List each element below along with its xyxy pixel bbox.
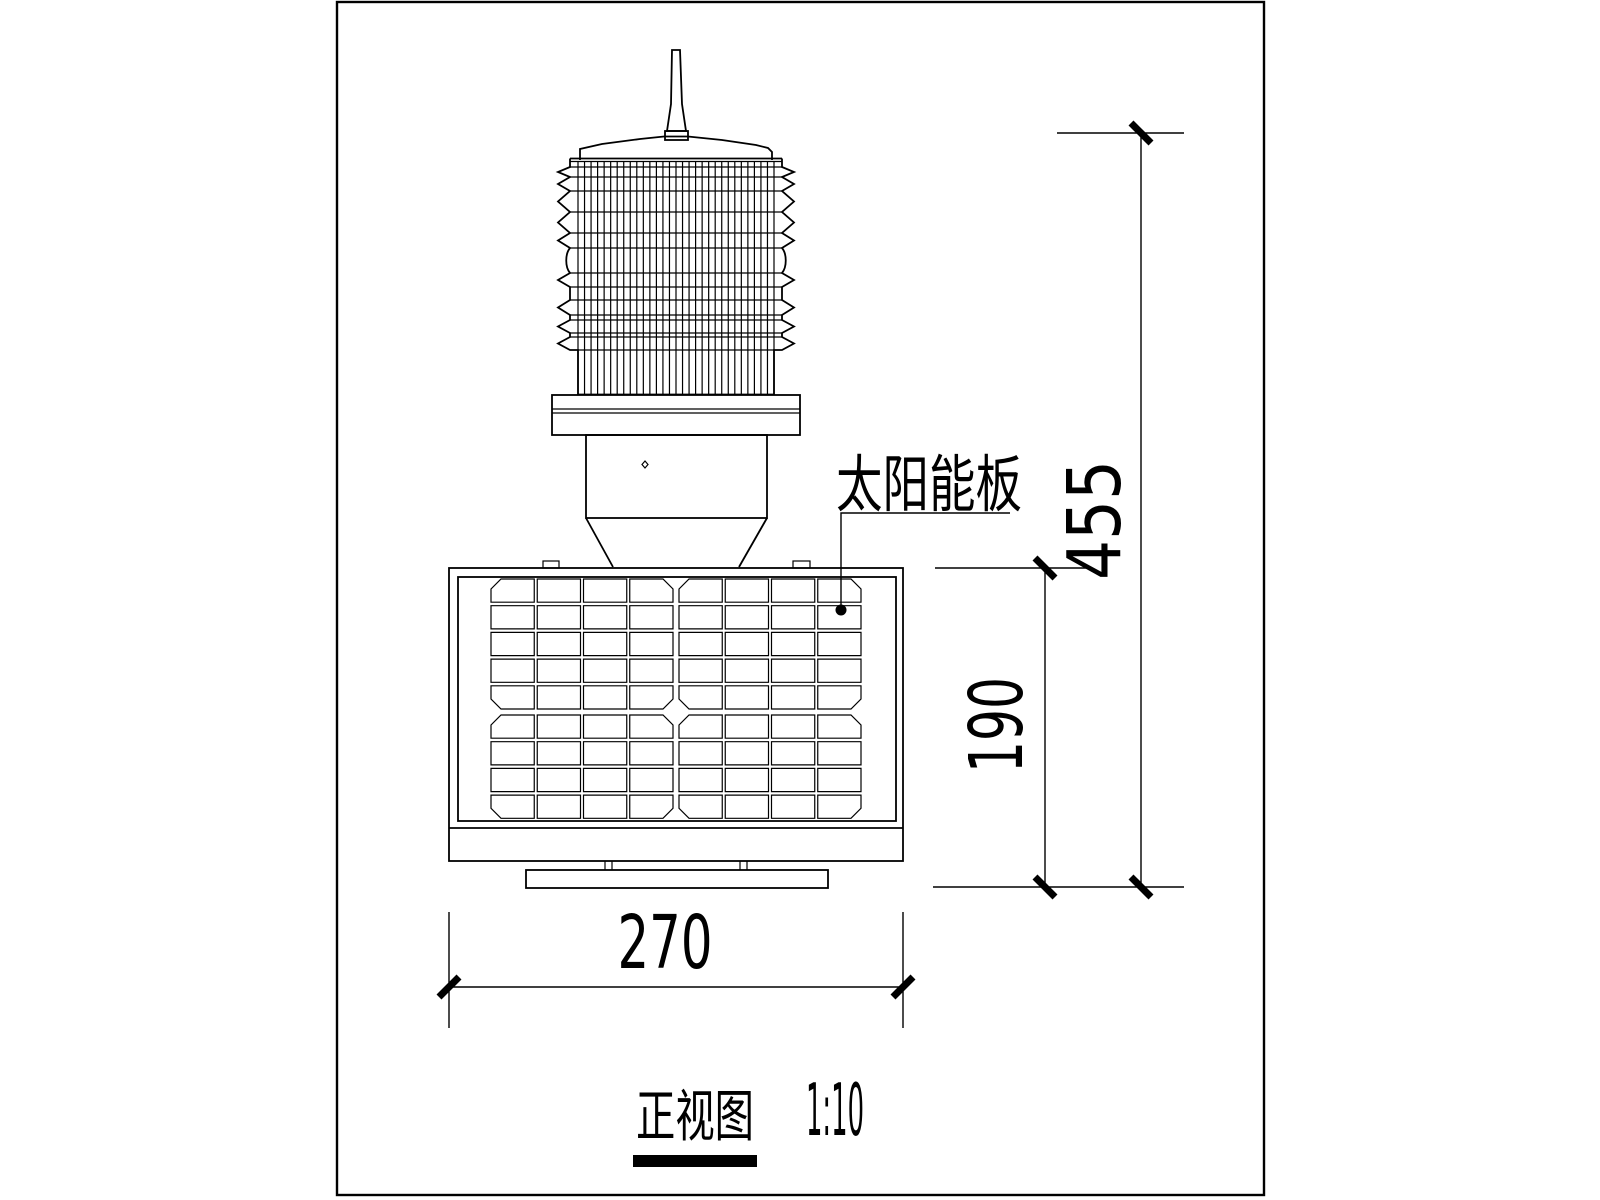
solar-cell [537,632,580,655]
solar-cell [491,659,534,682]
solar-cell [584,742,627,765]
solar-cell [818,742,861,765]
lamp-neck [586,435,767,518]
lamp-antenna-base [665,131,688,140]
solar-cell [818,579,861,602]
solar-panel-box [449,561,903,888]
solar-cell [772,579,815,602]
solar-cell [630,742,673,765]
label-leader-dot [836,605,847,616]
solar-cell [491,715,534,738]
solar-cell [772,742,815,765]
solar-cell [818,768,861,791]
dimension-panel-width: 270 [449,900,903,1028]
solar-cell [630,686,673,709]
lamp-flange [552,395,800,435]
solar-cell [537,795,580,818]
solar-cell [537,686,580,709]
solar-cell [630,659,673,682]
solar-cell [537,579,580,602]
solar-cell [772,686,815,709]
base-plate [526,870,828,888]
dimension-panel-height: 190 [935,568,1088,887]
solar-cell [679,795,722,818]
solar-cell [630,579,673,602]
solar-cell [772,715,815,738]
lamp-lens [558,159,794,396]
solar-cell [491,795,534,818]
solar-cell [491,742,534,765]
solar-cell [679,715,722,738]
neck-body [586,435,767,518]
label-leader-line [841,513,1010,610]
solar-cell [491,606,534,629]
solar-cell [584,659,627,682]
solar-cell [725,768,768,791]
solar-cell [679,606,722,629]
solar-cell [537,768,580,791]
solar-cell [630,715,673,738]
lamp-antenna [667,50,686,131]
drawing-frame-border [337,2,1264,1195]
solar-cell [584,606,627,629]
solar-cell [584,768,627,791]
solar-cell [725,579,768,602]
solar-cell [679,579,722,602]
solar-cell [772,768,815,791]
lens-left-outline [558,159,578,396]
lamp-cone [586,518,767,567]
solar-cell [630,768,673,791]
dim-190-text: 190 [954,677,1040,773]
solar-cell [818,659,861,682]
flange-plate [552,395,800,435]
solar-cell [725,742,768,765]
solar-cell [584,715,627,738]
solar-cell [679,742,722,765]
solar-cell [772,659,815,682]
solar-cell [818,686,861,709]
solar-cell [584,795,627,818]
view-title: 正视图 [636,1085,754,1150]
solar-cell [491,686,534,709]
dimension-overall-height: 455 [1052,133,1184,887]
solar-cell [537,659,580,682]
solar-cell [584,632,627,655]
solar-cell [772,606,815,629]
solar-cell [491,579,534,602]
solar-cell [818,715,861,738]
solar-cell [537,606,580,629]
cad-drawing: 太阳能板 455 190 270 正视图 1:10 [0,0,1600,1200]
solar-cell [725,795,768,818]
solar-cell [491,768,534,791]
solar-cell [679,659,722,682]
solar-cell [630,795,673,818]
solar-cell [679,686,722,709]
lens-vertical-facets [578,162,774,395]
solar-cell [818,795,861,818]
drawing-canvas: 太阳能板 455 190 270 正视图 1:10 [0,0,1600,1200]
view-scale: 1:10 [806,1068,864,1152]
title-block: 正视图 1:10 [633,1068,864,1167]
cone-left-edge [586,518,613,567]
title-underline-bar [633,1155,757,1167]
solar-cell [772,795,815,818]
solar-cell [725,606,768,629]
solar-cell [630,606,673,629]
solar-cell [679,768,722,791]
solar-panel-label: 太阳能板 [836,448,1023,616]
solar-cell [584,686,627,709]
solar-cell [818,632,861,655]
cone-right-edge [739,518,767,567]
solar-cell [725,715,768,738]
solar-cell [584,579,627,602]
box-top-clip-right [793,561,810,568]
box-inner-panel [458,577,896,821]
lens-right-outline [774,159,794,396]
dim-455-text: 455 [1052,460,1138,580]
solar-cell [537,742,580,765]
solar-cell [772,632,815,655]
solar-cell [725,632,768,655]
dimension-ticks [439,123,1151,997]
neck-center-mark [642,461,648,468]
solar-cell [679,632,722,655]
solar-cell [630,632,673,655]
beacon-lamp [552,50,800,567]
solar-cell [725,659,768,682]
solar-cell-grid [491,579,861,818]
solar-cell [725,686,768,709]
solar-panel-label-text: 太阳能板 [836,448,1022,521]
solar-cell [537,715,580,738]
dim-270-text: 270 [618,900,713,986]
box-top-clip-left [543,561,559,568]
solar-cell [491,632,534,655]
